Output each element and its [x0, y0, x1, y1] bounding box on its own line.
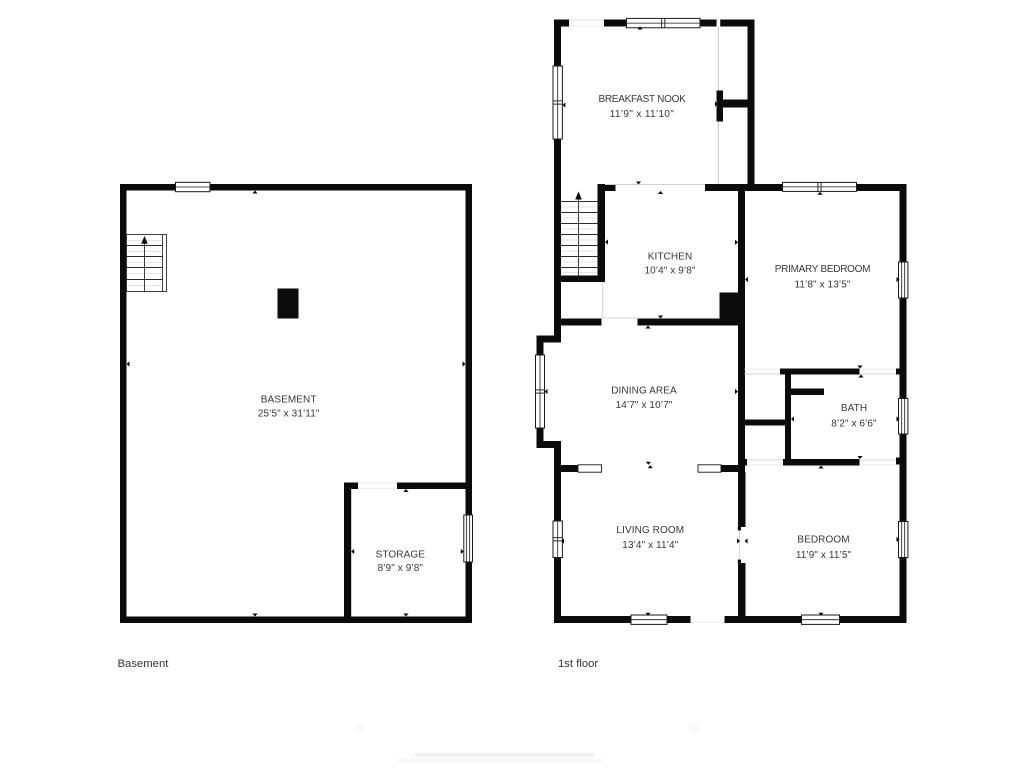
svg-text:8’9" x 9’8": 8’9" x 9’8" — [378, 563, 424, 574]
svg-text:BREAKFAST NOOK: BREAKFAST NOOK — [598, 94, 686, 105]
svg-text:1st floor: 1st floor — [558, 658, 598, 670]
svg-text:BATH: BATH — [841, 403, 867, 414]
svg-text:PRIMARY BEDROOM: PRIMARY BEDROOM — [775, 264, 870, 275]
svg-text:11’9" x 11’5": 11’9" x 11’5" — [796, 550, 852, 561]
svg-text:8’2" x 6’6": 8’2" x 6’6" — [831, 419, 877, 430]
svg-text:KITCHEN: KITCHEN — [648, 251, 693, 262]
svg-text:11’8" x 13’5": 11’8" x 13’5" — [794, 280, 850, 291]
svg-text:10’4" x 9’8": 10’4" x 9’8" — [644, 266, 695, 277]
svg-text:BASEMENT: BASEMENT — [261, 395, 317, 406]
svg-text:25’5" x 31’11": 25’5" x 31’11" — [258, 409, 320, 420]
svg-text:13’4" x 11’4": 13’4" x 11’4" — [622, 540, 678, 551]
svg-text:STORAGE: STORAGE — [376, 549, 426, 560]
svg-text:LIVING ROOM: LIVING ROOM — [616, 525, 684, 536]
svg-text:DINING AREA: DINING AREA — [611, 385, 677, 396]
svg-text:BEDROOM: BEDROOM — [797, 535, 849, 546]
svg-text:Basement: Basement — [118, 658, 170, 670]
svg-text:14’7" x 10’7": 14’7" x 10’7" — [616, 400, 673, 411]
svg-text:11’9" x 11’10": 11’9" x 11’10" — [610, 109, 675, 120]
